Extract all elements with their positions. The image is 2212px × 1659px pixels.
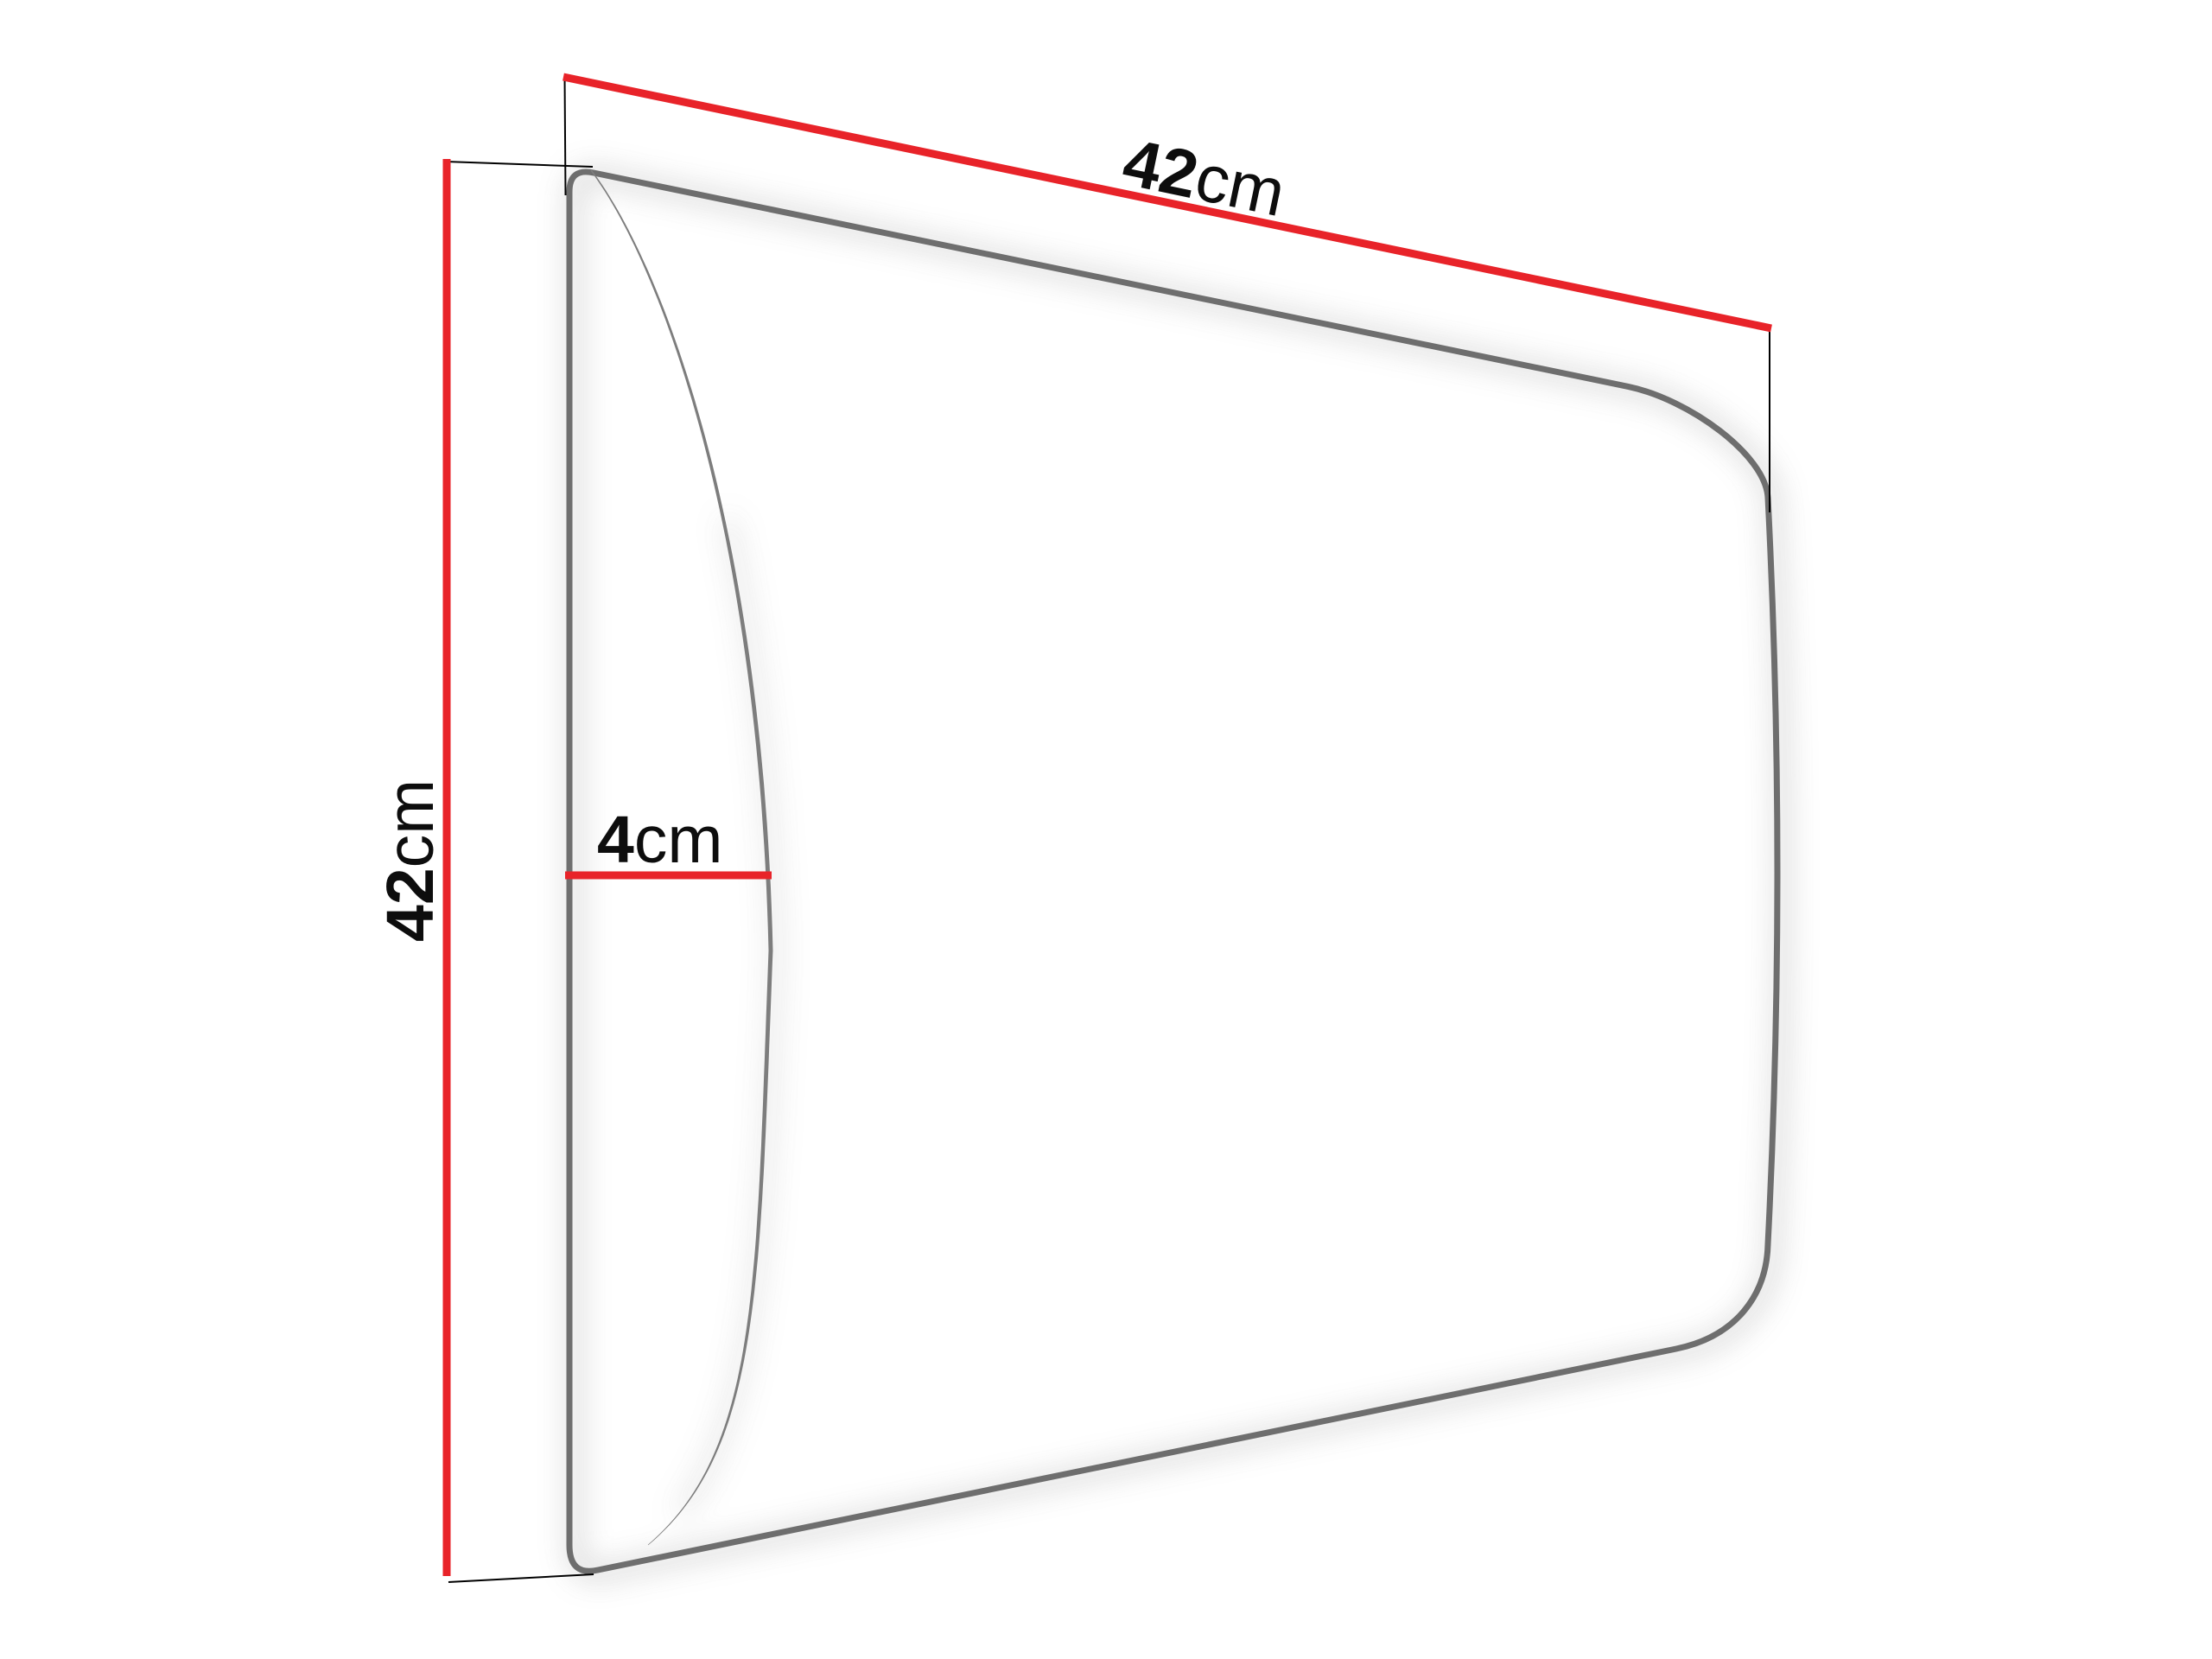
svg-text:4cm: 4cm [597,803,722,877]
svg-text:42cm: 42cm [373,779,448,942]
